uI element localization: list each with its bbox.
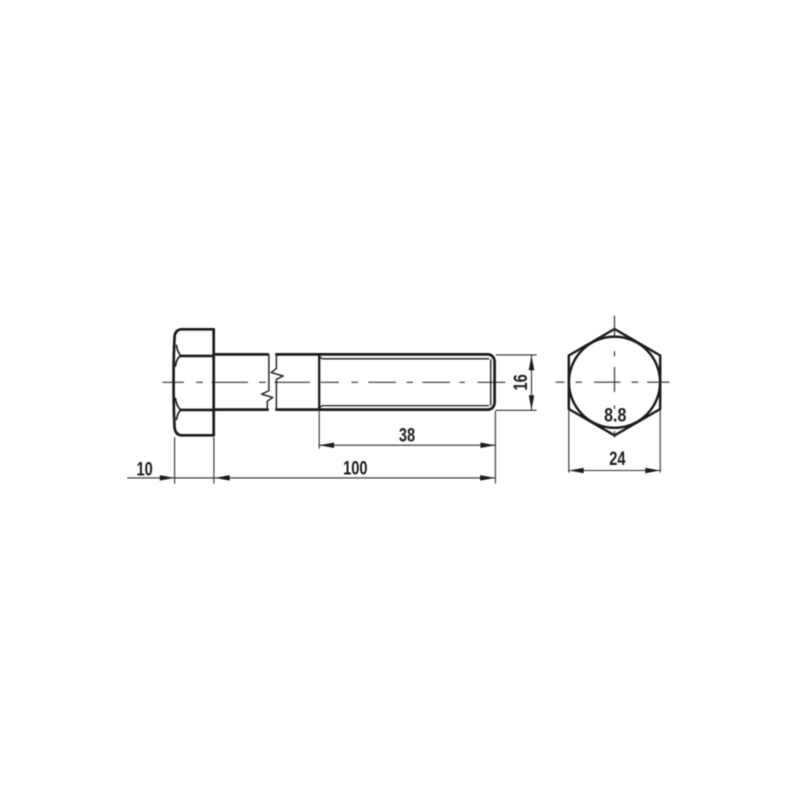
svg-text:38: 38 xyxy=(399,425,415,446)
svg-text:100: 100 xyxy=(343,458,367,479)
svg-text:16: 16 xyxy=(510,374,531,390)
svg-text:8.8: 8.8 xyxy=(604,404,626,426)
svg-text:10: 10 xyxy=(136,459,152,480)
svg-text:24: 24 xyxy=(609,448,626,469)
